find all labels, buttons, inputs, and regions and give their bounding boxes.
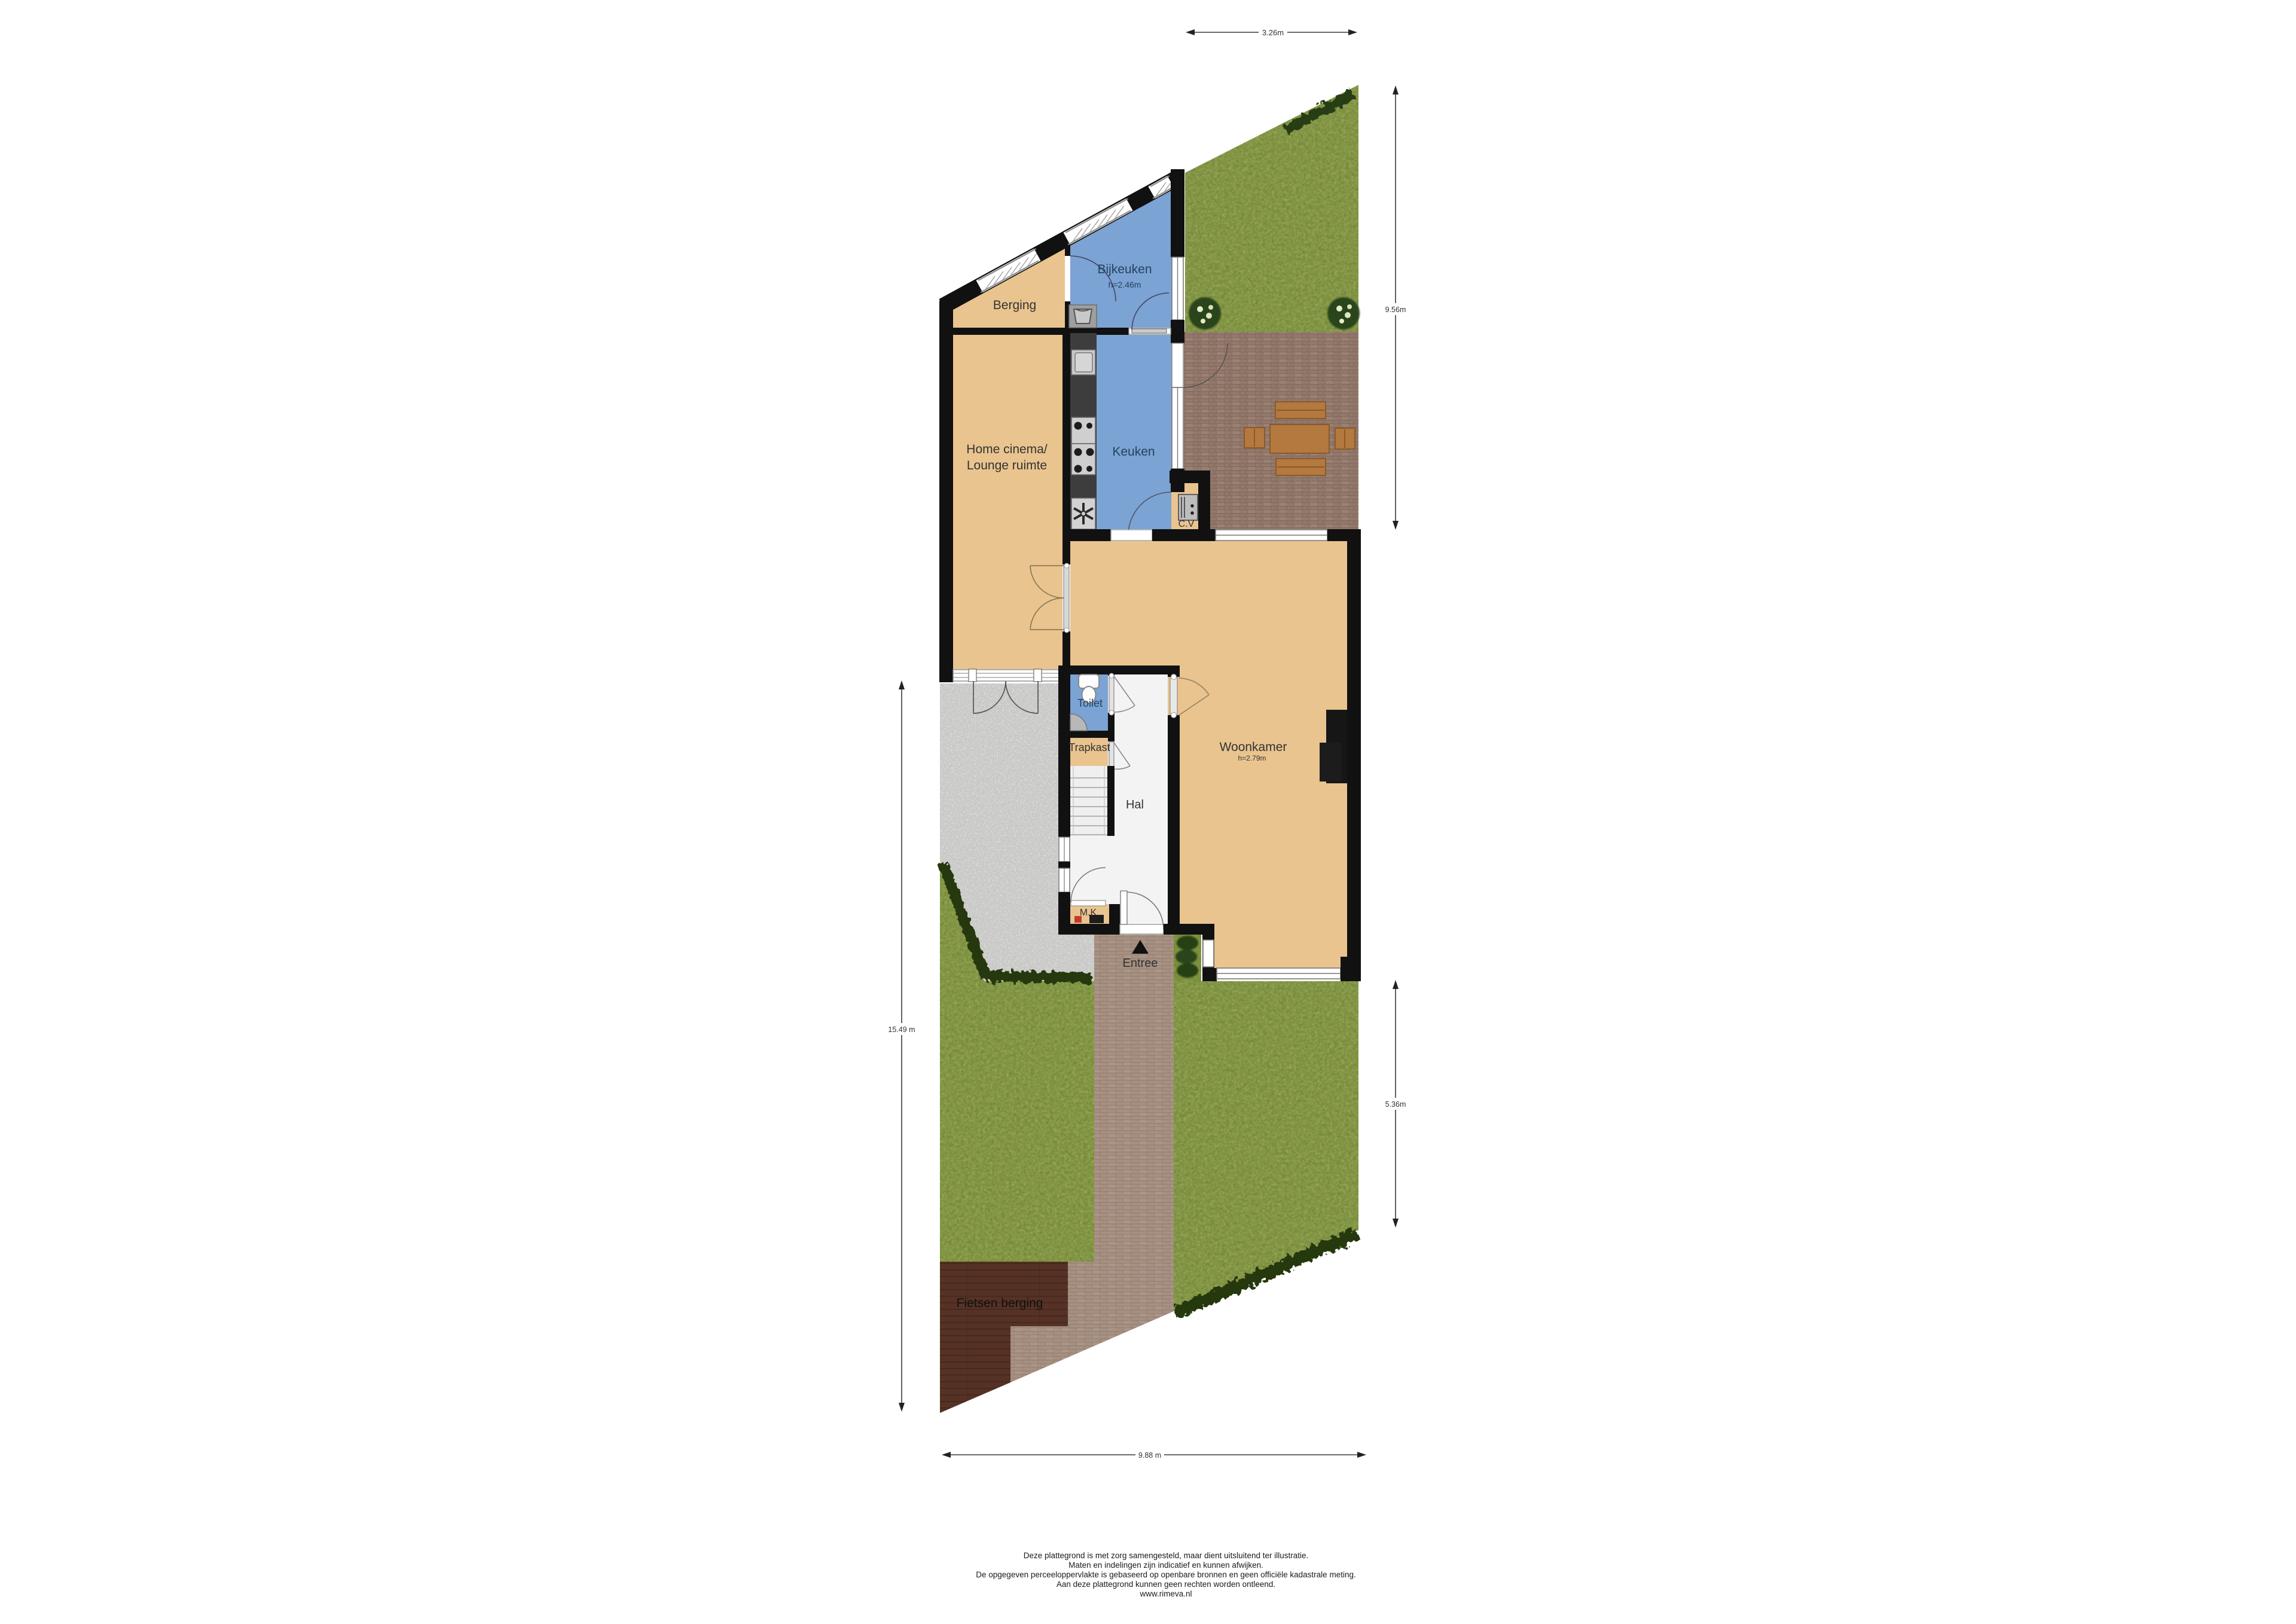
svg-text:Trapkast: Trapkast [1068,741,1110,753]
svg-text:5.36m: 5.36m [1385,1100,1406,1109]
svg-text:15.49 m: 15.49 m [888,1025,915,1034]
svg-text:De opgegeven perceeloppervlakt: De opgegeven perceeloppervlakte is gebas… [976,1570,1355,1579]
svg-text:3.26m: 3.26m [1262,28,1284,37]
svg-text:9.56m: 9.56m [1385,306,1406,314]
svg-text:Hal: Hal [1126,798,1144,811]
svg-text:Aan deze plattegrond kunnen ge: Aan deze plattegrond kunnen geen rechten… [1057,1580,1275,1589]
svg-text:Deze plattegrond is met zorg s: Deze plattegrond is met zorg samengestel… [1024,1551,1309,1560]
svg-text:9.88 m: 9.88 m [1138,1451,1161,1460]
svg-text:Entree: Entree [1123,957,1158,970]
svg-text:Toilet: Toilet [1077,697,1103,709]
svg-text:Keuken: Keuken [1112,445,1155,459]
svg-text:M.K: M.K [1080,908,1097,918]
svg-text:Home cinema/: Home cinema/ [966,442,1048,456]
svg-text:h=2.46m: h=2.46m [1109,280,1141,289]
svg-text:Lounge ruimte: Lounge ruimte [967,459,1047,472]
svg-text:Berging: Berging [993,298,1036,312]
svg-text:www.rimeva.nl: www.rimeva.nl [1139,1589,1192,1598]
svg-text:Woonkamer: Woonkamer [1220,740,1287,754]
svg-text:Fietsen berging: Fietsen berging [957,1296,1043,1310]
svg-text:Maten en indelingen zijn indic: Maten en indelingen zijn indicatief en k… [1068,1561,1263,1570]
svg-text:h=2.79m: h=2.79m [1238,754,1266,762]
svg-text:C.V: C.V [1178,519,1195,529]
svg-text:Bijkeuken: Bijkeuken [1097,262,1152,276]
